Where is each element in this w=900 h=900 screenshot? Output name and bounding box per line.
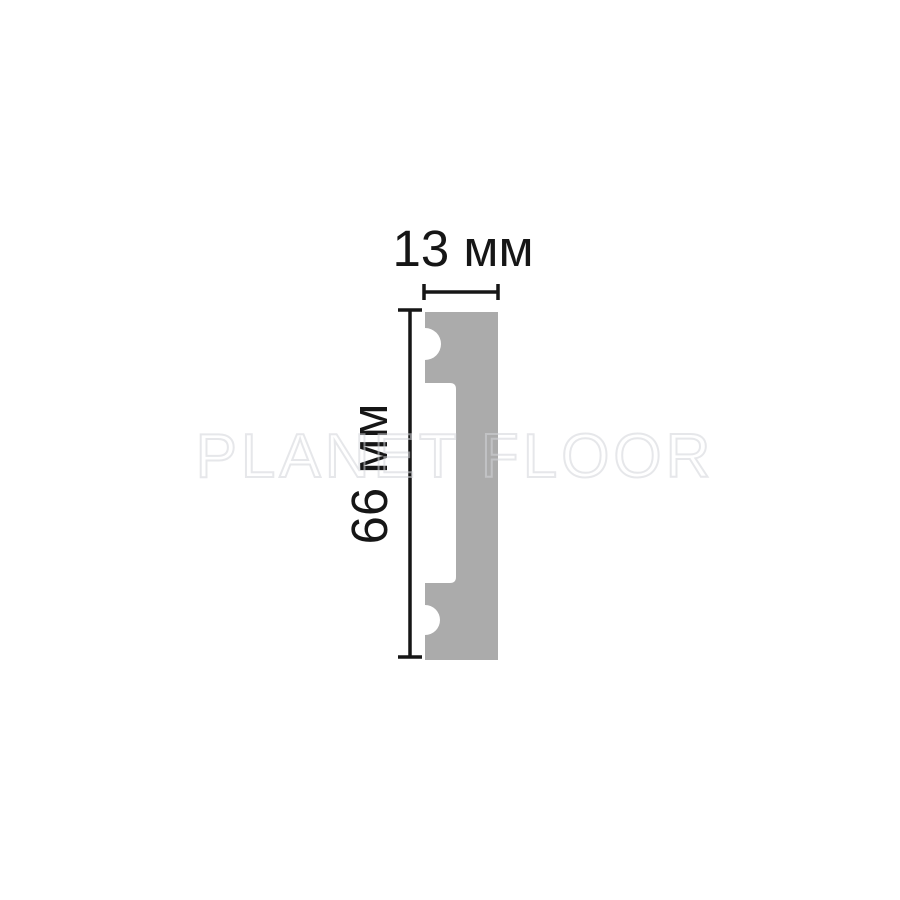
width-dimension-line (424, 284, 498, 300)
profile-cross-section (425, 312, 498, 660)
product-diagram-canvas: 13 мм 66 мм PLANET FLOOR (0, 0, 900, 900)
width-dimension-label: 13 мм (363, 223, 563, 275)
height-dimension-label: 66 мм (344, 374, 396, 574)
profile-drawing (0, 0, 900, 900)
height-dimension-line (398, 310, 422, 657)
